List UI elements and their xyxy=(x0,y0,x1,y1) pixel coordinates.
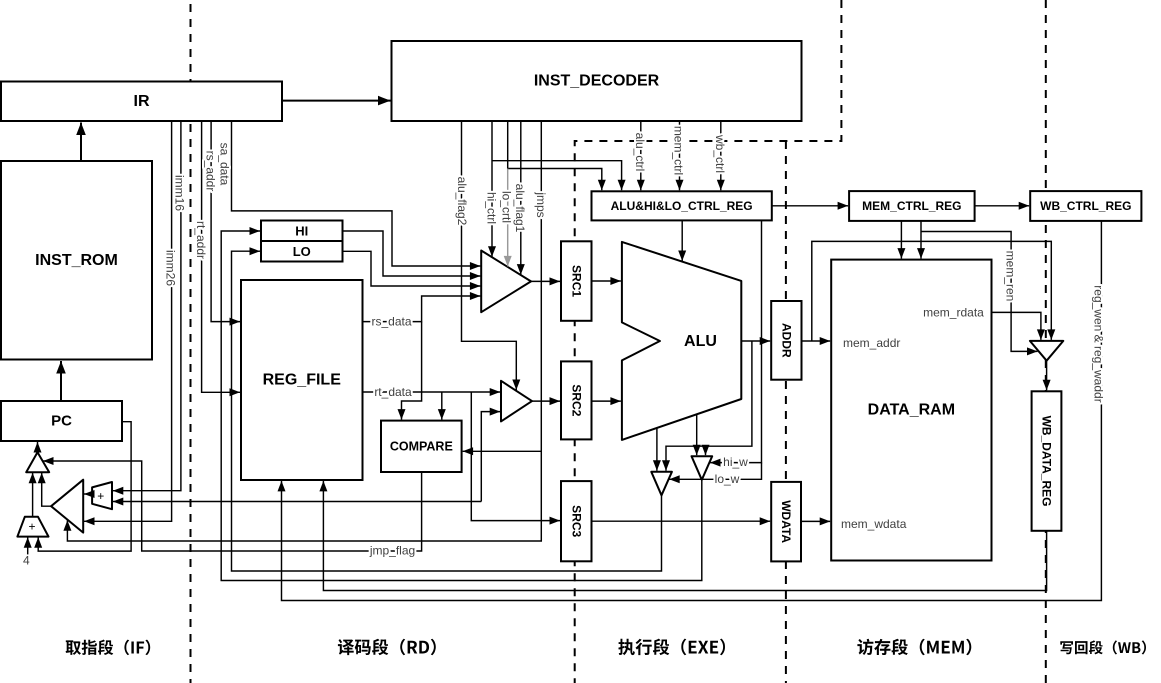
svg-text:MEM_CTRL_REG: MEM_CTRL_REG xyxy=(862,199,961,213)
svg-text:imm26: imm26 xyxy=(163,250,177,286)
svg-text:rs_addr: rs_addr xyxy=(204,151,218,192)
svg-text:DATA_RAM: DATA_RAM xyxy=(868,402,955,419)
svg-text:mem_ren: mem_ren xyxy=(1003,251,1017,302)
svg-text:PC: PC xyxy=(51,413,72,430)
svg-text:imm16: imm16 xyxy=(173,175,187,211)
svg-text:SRC3: SRC3 xyxy=(569,505,583,537)
svg-text:4: 4 xyxy=(23,554,30,568)
svg-text:rt_addr: rt_addr xyxy=(194,221,208,259)
svg-text:hi_w: hi_w xyxy=(723,455,748,469)
svg-text:INST_DECODER: INST_DECODER xyxy=(534,73,660,90)
svg-text:ADDR: ADDR xyxy=(779,323,793,358)
svg-text:rt_data: rt_data xyxy=(374,385,412,399)
svg-text:mem_addr: mem_addr xyxy=(843,336,900,350)
svg-text:reg_wen & reg_waddr: reg_wen & reg_waddr xyxy=(1091,285,1105,402)
svg-text:rs_data: rs_data xyxy=(371,315,411,329)
svg-text:IR: IR xyxy=(134,93,150,110)
svg-text:INST_ROM: INST_ROM xyxy=(35,252,118,269)
svg-text:mem_ctrl: mem_ctrl xyxy=(672,126,686,175)
svg-text:WB_DATA_REG: WB_DATA_REG xyxy=(1040,416,1054,507)
svg-text:alu_ctrl: alu_ctrl xyxy=(633,133,647,172)
svg-text:SRC1: SRC1 xyxy=(569,265,583,297)
svg-text:sa_data: sa_data xyxy=(218,143,232,186)
svg-text:WB_CTRL_REG: WB_CTRL_REG xyxy=(1040,199,1131,213)
svg-text:WDATA: WDATA xyxy=(779,500,793,543)
svg-text:HI: HI xyxy=(295,223,308,238)
svg-text:mem_wdata: mem_wdata xyxy=(841,517,907,531)
svg-text:lo_crtl: lo_crtl xyxy=(500,191,514,223)
svg-text:ALU&HI&LO_CTRL_REG: ALU&HI&LO_CTRL_REG xyxy=(611,199,753,213)
svg-text:+: + xyxy=(97,489,104,503)
svg-text:alu_flag1: alu_flag1 xyxy=(513,184,527,233)
svg-text:jmp_flag: jmp_flag xyxy=(369,544,415,558)
svg-text:REG_FILE: REG_FILE xyxy=(263,372,342,389)
svg-text:LO: LO xyxy=(293,244,311,259)
svg-text:SRC2: SRC2 xyxy=(569,384,583,416)
svg-text:mem_rdata: mem_rdata xyxy=(923,305,984,319)
svg-text:COMPARE: COMPARE xyxy=(390,439,453,453)
svg-text:lo_w: lo_w xyxy=(715,472,740,486)
svg-text:ALU: ALU xyxy=(684,333,717,350)
svg-text:jmps: jmps xyxy=(534,191,548,217)
svg-text:+: + xyxy=(28,520,35,534)
svg-text:alu_flag2: alu_flag2 xyxy=(455,177,469,226)
svg-text:hi_ctrl: hi_ctrl xyxy=(485,192,499,224)
svg-text:wb_ctrl: wb_ctrl xyxy=(713,134,727,173)
